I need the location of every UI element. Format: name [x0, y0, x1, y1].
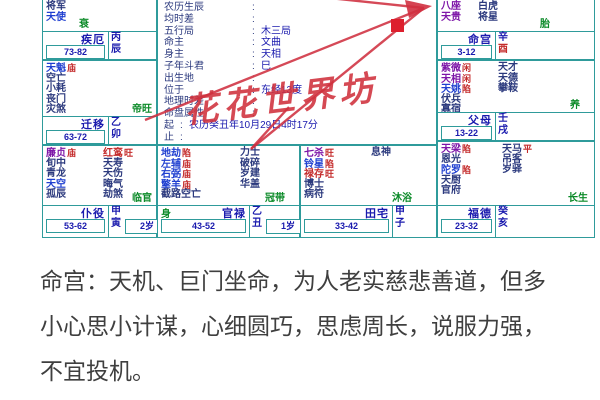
star-brightness: 庙	[182, 159, 191, 169]
star-brightness: 庙	[182, 180, 191, 190]
star: 岁建	[240, 168, 260, 179]
star: 天贵	[441, 12, 461, 23]
star: 天德	[498, 73, 518, 84]
star: 白虎	[478, 1, 498, 12]
branch-char: 亥	[498, 218, 508, 230]
star: 破碎	[240, 158, 260, 169]
palace-name-box: 身官禄43-52	[158, 206, 250, 237]
branch-char: 寅	[111, 218, 121, 230]
star: 官府	[441, 185, 461, 196]
stem-char: 壬	[498, 113, 508, 125]
stage-label: 长生	[568, 189, 588, 204]
stage-label: 冠带	[265, 189, 285, 204]
star: 华盖	[240, 179, 260, 190]
star-brightness: 陷	[325, 159, 334, 169]
star-brightness: 陷	[462, 165, 471, 175]
star-line: 将星	[478, 13, 498, 24]
star-brightness: 平	[523, 144, 532, 154]
star: 息神	[371, 147, 391, 158]
star-line: 天相闲	[441, 74, 471, 85]
star-line: 劫煞	[103, 190, 133, 201]
palace-name-box: 父母13-22	[438, 113, 496, 140]
info-row: 均时差:	[164, 14, 436, 26]
star-line: 紫微闲	[441, 63, 471, 74]
star-line: 地劫陷	[161, 148, 201, 159]
age-range: 53-62	[46, 219, 105, 233]
star: 天才	[498, 62, 518, 73]
palace-name-box: 福德23-32	[438, 206, 496, 237]
info-value: 文曲	[261, 37, 281, 49]
info-label: 子年斗君	[164, 61, 252, 73]
star-brightness: 闲	[462, 74, 471, 84]
star: 七杀	[304, 148, 324, 159]
star: 天伤	[103, 168, 123, 179]
branch-char: 酉	[498, 44, 508, 56]
stem-branch: 乙丑	[250, 206, 262, 230]
star: 铃星	[304, 159, 324, 170]
info-label: 命主	[164, 37, 252, 49]
palace-name-box: 迁移63-72	[43, 117, 109, 144]
age-range: 43-52	[161, 219, 246, 233]
star: 地劫	[161, 148, 181, 159]
star-brightness: 陷	[462, 84, 471, 94]
age-range: 63-72	[46, 130, 105, 144]
star-line: 天使	[46, 13, 66, 24]
palace-header-strip: 田宅33-42甲子	[301, 205, 436, 237]
star-brightness: 闲	[462, 63, 471, 73]
age-range: 13-22	[441, 126, 492, 140]
star: 天使	[46, 12, 66, 23]
star: 将军	[46, 1, 66, 12]
info-label: 起	[164, 120, 180, 132]
palace-name-row: 田宅	[301, 206, 392, 219]
palace-header-strip: 迁移63-72乙卯	[43, 116, 156, 144]
branch-char: 卯	[111, 129, 121, 141]
star-area: 廉贞庙旬中青龙天空孤辰红鸾旺天寿天伤晦气劫煞临官	[43, 146, 156, 205]
star-brightness: 庙	[182, 169, 191, 179]
palace-name-row: 福德	[438, 206, 495, 219]
palace-name-box: 田宅33-42	[301, 206, 393, 237]
star-area: 紫微闲天相闲天姚陷伏兵寡宿天才天德攀鞍养	[438, 61, 594, 112]
palace-cell-zi: 七杀旺铃星陷禄存旺博士病符息神沐浴田宅33-42甲子	[300, 145, 437, 238]
branch-char: 戌	[498, 125, 508, 137]
star: 吊客	[502, 154, 522, 165]
palace-name-row: 命宫	[438, 32, 495, 45]
ziwei-chart: 将军天使衰疾厄73-82丙辰天魁庙空亡小耗丧门灾煞帝旺迁移63-72乙卯廉贞庙旬…	[0, 0, 600, 246]
body-palace-marker: 身	[161, 205, 171, 220]
stem-branch: 乙卯	[109, 117, 121, 141]
star-column-right: 天才天德攀鞍	[498, 63, 518, 95]
star: 旬中	[46, 158, 66, 169]
palace-cell-hai: 天梁陷恩光陀罗陷天厨官府天马平吊客岁驿长生福德23-32癸亥	[437, 141, 595, 238]
palace-name-row: 仆役	[43, 206, 108, 219]
page: 将军天使衰疾厄73-82丙辰天魁庙空亡小耗丧门灾煞帝旺迁移63-72乙卯廉贞庙旬…	[0, 0, 600, 400]
analysis-text: 命宫：天机、巨门坐命，为人老实慈悲善道，但多小心思小计谋，心细圆巧，思虑周长，说…	[40, 259, 552, 394]
stem-branch: 丙辰	[109, 32, 121, 56]
star-area: 地劫陷左辅庙右弼庙擎羊庙截路空亡力士破碎岁建华盖冠带	[158, 146, 299, 205]
star-brightness: 陷	[182, 148, 191, 158]
stage-label: 衰	[79, 15, 89, 30]
star: 攀鞍	[498, 83, 518, 94]
stem-char: 乙	[252, 206, 262, 218]
star: 空亡	[46, 73, 66, 84]
star-area: 天魁庙空亡小耗丧门灾煞帝旺	[43, 61, 156, 116]
star-line: 官府	[441, 186, 471, 197]
star-column-right: 天马平吊客岁驿	[502, 144, 532, 176]
star-line: 天贵	[441, 13, 461, 24]
star-column-left: 地劫陷左辅庙右弼庙擎羊庙截路空亡	[161, 148, 201, 201]
branch-char: 子	[395, 218, 405, 230]
star: 病符	[304, 189, 324, 200]
palace-cell-xu: 紫微闲天相闲天姚陷伏兵寡宿天才天德攀鞍养父母13-22壬戌	[437, 60, 595, 141]
star: 岁驿	[502, 164, 522, 175]
age-range: 33-42	[304, 219, 389, 233]
info-row: 五行局:木三局	[164, 26, 436, 38]
stem-char: 癸	[498, 206, 508, 218]
star-area: 八座天贵白虎将星胎	[438, 0, 594, 31]
star: 紫微	[441, 63, 461, 74]
age-range: 23-32	[441, 219, 492, 233]
star: 天相	[441, 74, 461, 85]
info-value: 木三局	[261, 26, 291, 38]
age-range: 73-82	[46, 45, 105, 59]
stem-branch: 甲子	[393, 206, 405, 230]
palace-cell-yin: 廉贞庙旬中青龙天空孤辰红鸾旺天寿天伤晦气劫煞临官仆役53-62甲寅2岁	[42, 145, 157, 238]
info-value: 巳	[261, 61, 271, 73]
stage-label: 胎	[540, 15, 550, 30]
star: 灾煞	[46, 104, 66, 115]
star-line: 恩光	[441, 155, 471, 166]
palace-header-strip: 父母13-22壬戌	[438, 112, 594, 140]
star-column-left: 天魁庙空亡小耗丧门灾煞	[46, 63, 76, 116]
star: 青龙	[46, 168, 66, 179]
star-line: 灾煞	[46, 105, 76, 116]
star-brightness: 庙	[67, 63, 76, 73]
info-label: 止	[164, 132, 180, 144]
star: 恩光	[441, 154, 461, 165]
stem-branch: 癸亥	[496, 206, 508, 230]
star-column-left: 八座天贵	[441, 2, 461, 23]
star-line: 岁驿	[502, 165, 532, 176]
star: 劫煞	[103, 189, 123, 200]
star: 将星	[478, 12, 498, 23]
star-line: 左辅庙	[161, 159, 201, 170]
palace-cell-chou: 地劫陷左辅庙右弼庙擎羊庙截路空亡力士破碎岁建华盖冠带身官禄43-52乙丑1岁	[157, 145, 300, 238]
stem-char: 乙	[111, 117, 121, 129]
star-area: 将军天使衰	[43, 0, 156, 31]
star: 左辅	[161, 159, 181, 170]
star-line: 华盖	[240, 180, 260, 191]
palace-header-strip: 福德23-32癸亥	[438, 205, 594, 237]
palace-name-box: 命宫3-12	[438, 32, 496, 59]
star-column-left: 廉贞庙旬中青龙天空孤辰	[46, 148, 76, 201]
star-column-left: 将军天使	[46, 2, 66, 23]
info-colon: :	[252, 26, 261, 38]
star: 天寿	[103, 158, 123, 169]
star: 孤辰	[46, 189, 66, 200]
star-column-left: 紫微闲天相闲天姚陷伏兵寡宿	[441, 63, 471, 116]
stem-branch: 辛酉	[496, 32, 508, 56]
palace-header-strip: 疾厄73-82丙辰	[43, 31, 156, 59]
palace-name-box: 仆役53-62	[43, 206, 109, 237]
info-label: 身主	[164, 49, 252, 61]
stem-char: 辛	[498, 32, 508, 44]
star: 晦气	[103, 179, 123, 190]
star-line: 铃星陷	[304, 159, 334, 170]
palace-name-row: 身官禄	[158, 206, 249, 219]
star-column-left: 天梁陷恩光陀罗陷天厨官府	[441, 144, 471, 197]
star-column-right: 红鸾旺天寿天伤晦气劫煞	[103, 148, 133, 201]
palace-name-box: 疾厄73-82	[43, 32, 109, 59]
stem-char: 丙	[111, 32, 121, 44]
star-line: 截路空亡	[161, 190, 201, 201]
info-row: 命主:文曲	[164, 37, 436, 49]
info-value: 天相	[261, 49, 281, 61]
palace-name-row: 迁移	[43, 117, 108, 130]
star: 博士	[304, 179, 324, 190]
palace-header-strip: 仆役53-62甲寅2岁	[43, 205, 156, 237]
info-colon: :	[180, 132, 189, 144]
star-brightness: 陷	[462, 144, 471, 154]
stem-char: 甲	[395, 206, 405, 218]
info-label: 五行局	[164, 26, 252, 38]
stem-branch: 壬戌	[496, 113, 508, 137]
star-column-right: 白虎将星	[478, 2, 498, 23]
star-line: 息神	[371, 148, 391, 159]
star-column-right: 力士破碎岁建华盖	[240, 148, 260, 190]
palace-header-strip: 身官禄43-52乙丑1岁	[158, 205, 299, 237]
star-line: 病符	[304, 190, 334, 201]
info-row: 止:	[164, 132, 436, 144]
star: 力士	[240, 147, 260, 158]
star-brightness: 旺	[124, 148, 133, 158]
branch-char: 丑	[252, 218, 262, 230]
info-row: 农历生辰:	[164, 2, 436, 14]
star-line: 孤辰	[46, 190, 76, 201]
star: 伏兵	[441, 94, 461, 105]
info-row: 身主:天相	[164, 49, 436, 61]
stem-branch: 甲寅	[109, 206, 121, 230]
star: 天厨	[441, 175, 461, 186]
stem-char: 甲	[111, 206, 121, 218]
star-line: 右弼庙	[161, 169, 201, 180]
info-colon: :	[252, 61, 261, 73]
stage-label: 临官	[132, 189, 152, 204]
info-colon: :	[252, 14, 261, 26]
star-brightness: 旺	[325, 169, 334, 179]
age-range: 3-12	[441, 45, 492, 59]
info-label: 农历生辰	[164, 2, 252, 14]
info-colon: :	[252, 37, 261, 49]
star: 小耗	[46, 83, 66, 94]
star: 右弼	[161, 169, 181, 180]
palace-header-strip: 命宫3-12辛酉	[438, 31, 594, 59]
palace-cell-chen: 将军天使衰疾厄73-82丙辰	[42, 0, 157, 60]
star-column-left: 七杀旺铃星陷禄存旺博士病符	[304, 148, 334, 201]
star: 天空	[46, 179, 66, 190]
star-column-right: 息神	[371, 148, 391, 159]
info-label: 均时差	[164, 14, 252, 26]
info-colon: :	[252, 2, 261, 14]
info-colon: :	[252, 49, 261, 61]
stage-label: 沐浴	[392, 189, 412, 204]
palace-name-row: 疾厄	[43, 32, 108, 45]
star-area: 七杀旺铃星陷禄存旺博士病符息神沐浴	[301, 146, 436, 205]
palace-name-row: 父母	[438, 113, 495, 126]
stage-label: 帝旺	[132, 100, 152, 115]
palace-cell-mao: 天魁庙空亡小耗丧门灾煞帝旺迁移63-72乙卯	[42, 60, 157, 145]
star-line: 七杀旺	[304, 148, 334, 159]
stage-label: 养	[570, 96, 580, 111]
star-line: 攀鞍	[498, 84, 518, 95]
star-area: 天梁陷恩光陀罗陷天厨官府天马平吊客岁驿长生	[438, 142, 594, 205]
star: 截路空亡	[161, 189, 201, 200]
palace-cell-you: 八座天贵白虎将星胎命宫3-12辛酉	[437, 0, 595, 60]
star-brightness: 庙	[67, 148, 76, 158]
star: 丧门	[46, 94, 66, 105]
star: 八座	[441, 1, 461, 12]
branch-char: 辰	[111, 44, 121, 56]
star-brightness: 旺	[325, 148, 334, 158]
